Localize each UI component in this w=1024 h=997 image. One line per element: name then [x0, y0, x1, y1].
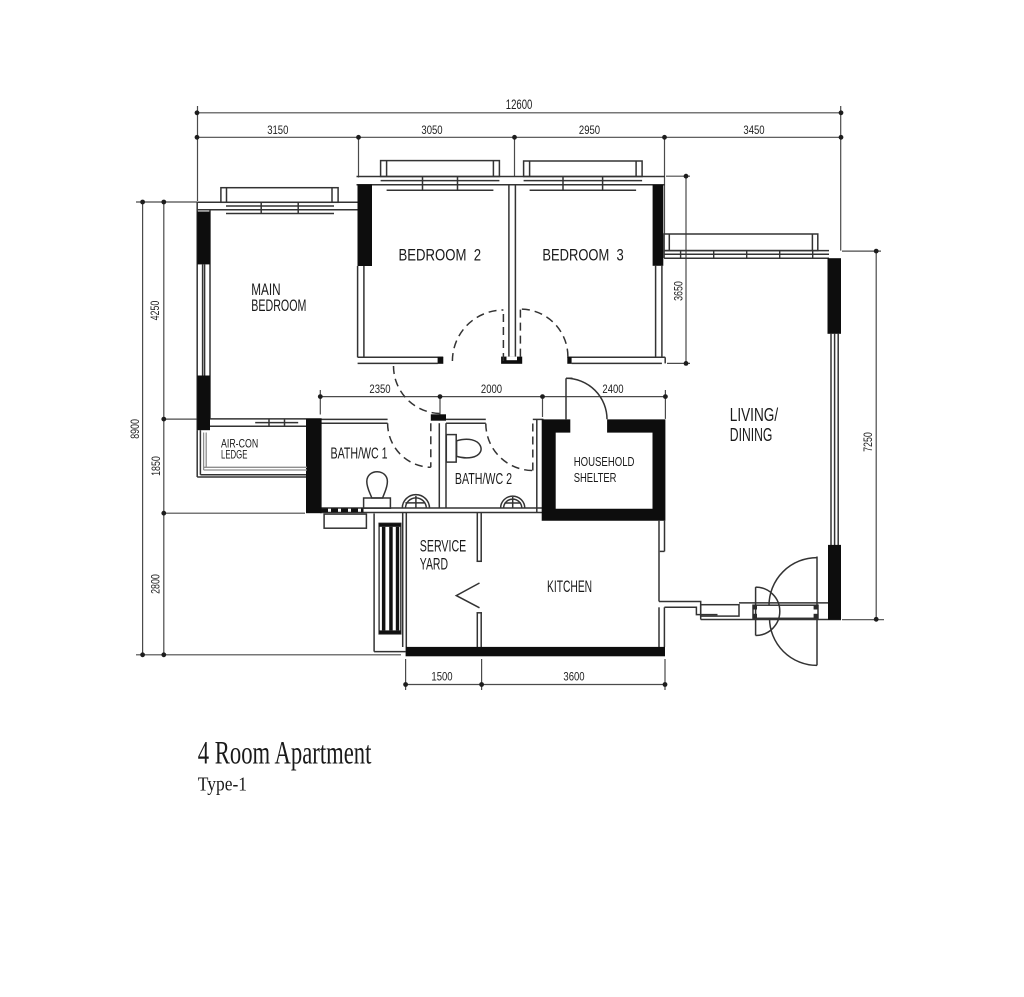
svg-text:2950: 2950 [579, 123, 600, 137]
svg-text:8900: 8900 [128, 419, 142, 439]
svg-text:SHELTER: SHELTER [574, 471, 617, 485]
svg-text:4 Room Apartment: 4 Room Apartment [198, 735, 372, 771]
svg-text:3600: 3600 [563, 670, 584, 684]
svg-text:12600: 12600 [506, 97, 533, 112]
svg-text:1850: 1850 [149, 456, 163, 476]
svg-text:BATH/WC 2: BATH/WC 2 [455, 471, 512, 488]
svg-text:3450: 3450 [743, 123, 764, 137]
svg-text:BEDROOM 3: BEDROOM 3 [542, 247, 623, 265]
svg-text:SERVICE: SERVICE [420, 537, 466, 555]
svg-text:2400: 2400 [602, 382, 623, 396]
svg-text:DINING: DINING [730, 425, 773, 445]
svg-text:MAIN: MAIN [251, 281, 280, 299]
svg-text:7250: 7250 [861, 432, 875, 452]
svg-text:Type-1: Type-1 [198, 774, 247, 796]
svg-text:4250: 4250 [148, 301, 162, 321]
svg-text:3150: 3150 [267, 123, 288, 137]
svg-text:BEDROOM 2: BEDROOM 2 [399, 247, 482, 265]
svg-text:1500: 1500 [431, 670, 452, 684]
svg-text:YARD: YARD [420, 556, 448, 574]
svg-text:LEDGE: LEDGE [221, 447, 247, 461]
svg-text:HOUSEHOLD: HOUSEHOLD [574, 455, 635, 469]
svg-text:LIVING/: LIVING/ [730, 405, 778, 425]
svg-text:3050: 3050 [421, 123, 442, 137]
svg-text:2350: 2350 [369, 382, 390, 396]
svg-text:BEDROOM: BEDROOM [251, 297, 306, 315]
svg-text:2000: 2000 [481, 382, 502, 396]
svg-text:BATH/WC 1: BATH/WC 1 [331, 446, 388, 463]
svg-text:2800: 2800 [148, 574, 162, 594]
svg-text:KITCHEN: KITCHEN [547, 577, 592, 596]
svg-text:3650: 3650 [671, 281, 685, 301]
